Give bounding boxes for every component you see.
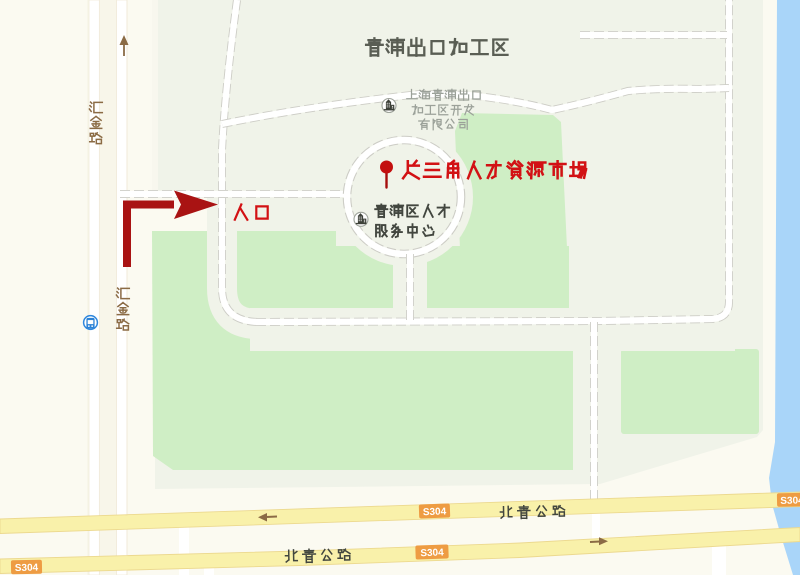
svg-text:S304: S304	[780, 495, 800, 506]
svg-text:S304: S304	[423, 506, 447, 518]
svg-text:S304: S304	[15, 563, 39, 574]
svg-text:S304: S304	[420, 547, 444, 559]
